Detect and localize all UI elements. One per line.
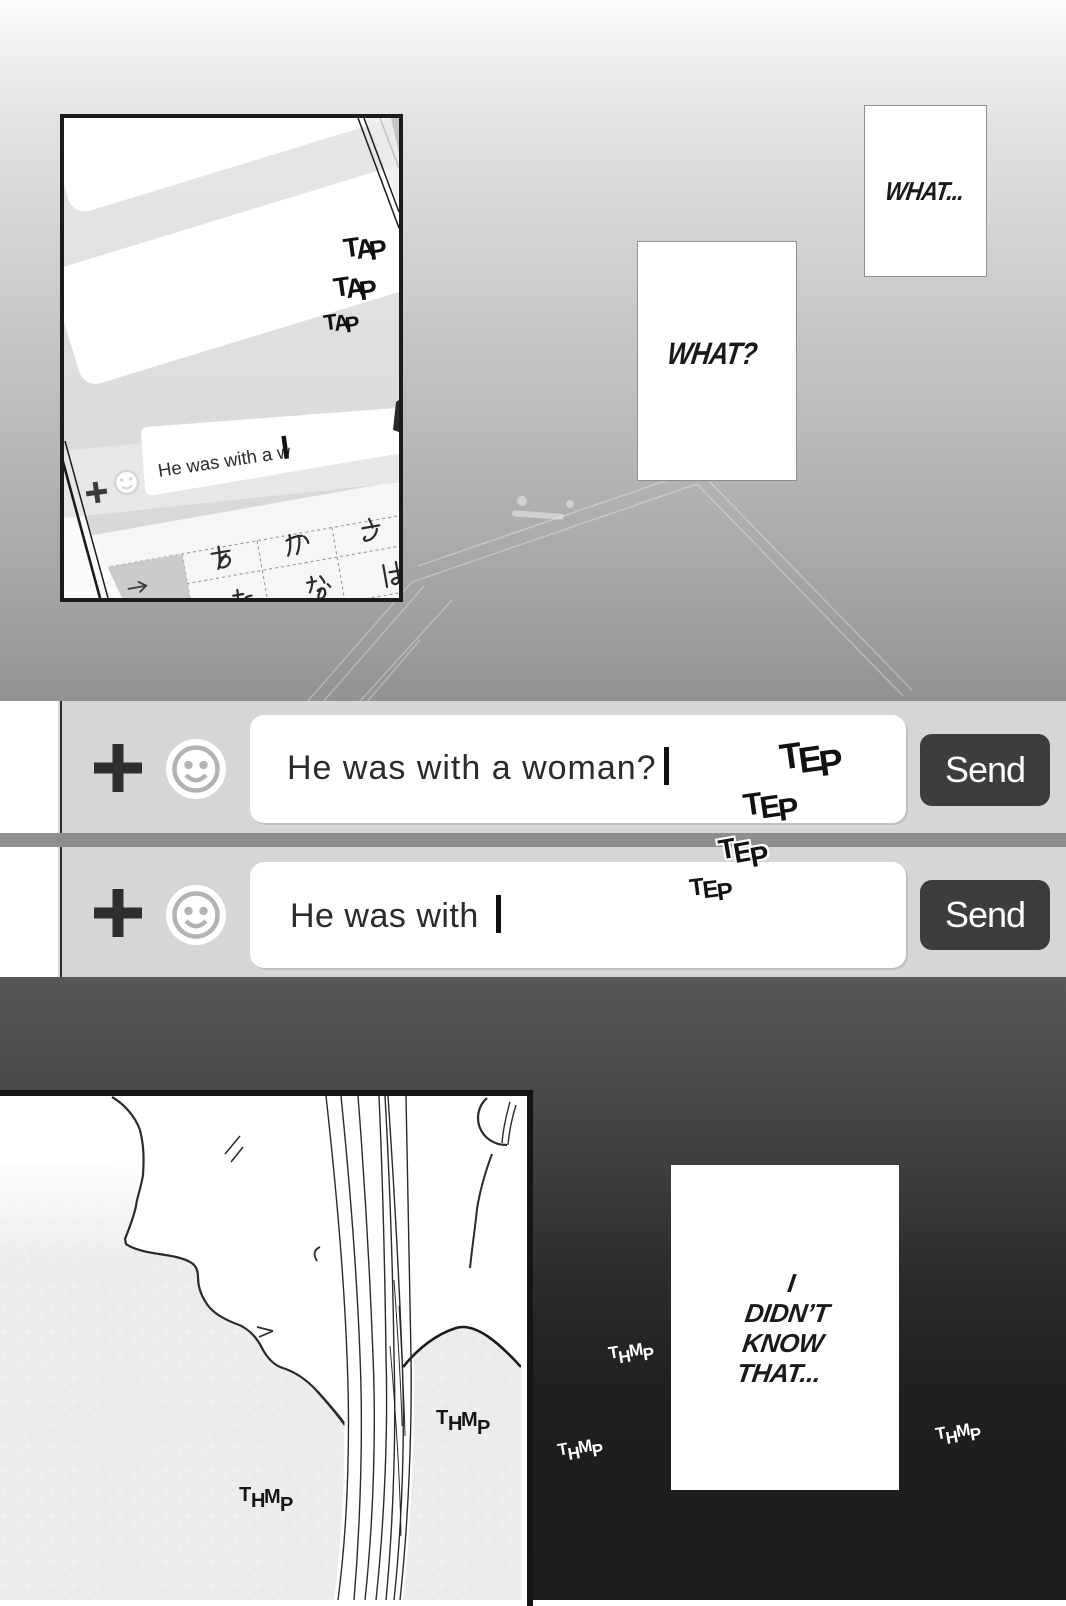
svg-text:M: M [264, 1486, 281, 1508]
svg-text:T: T [436, 1407, 448, 1429]
svg-text:P: P [280, 1494, 293, 1516]
svg-text:P: P [477, 1417, 490, 1439]
svg-text:M: M [461, 1409, 478, 1431]
svg-text:T: T [239, 1484, 251, 1506]
